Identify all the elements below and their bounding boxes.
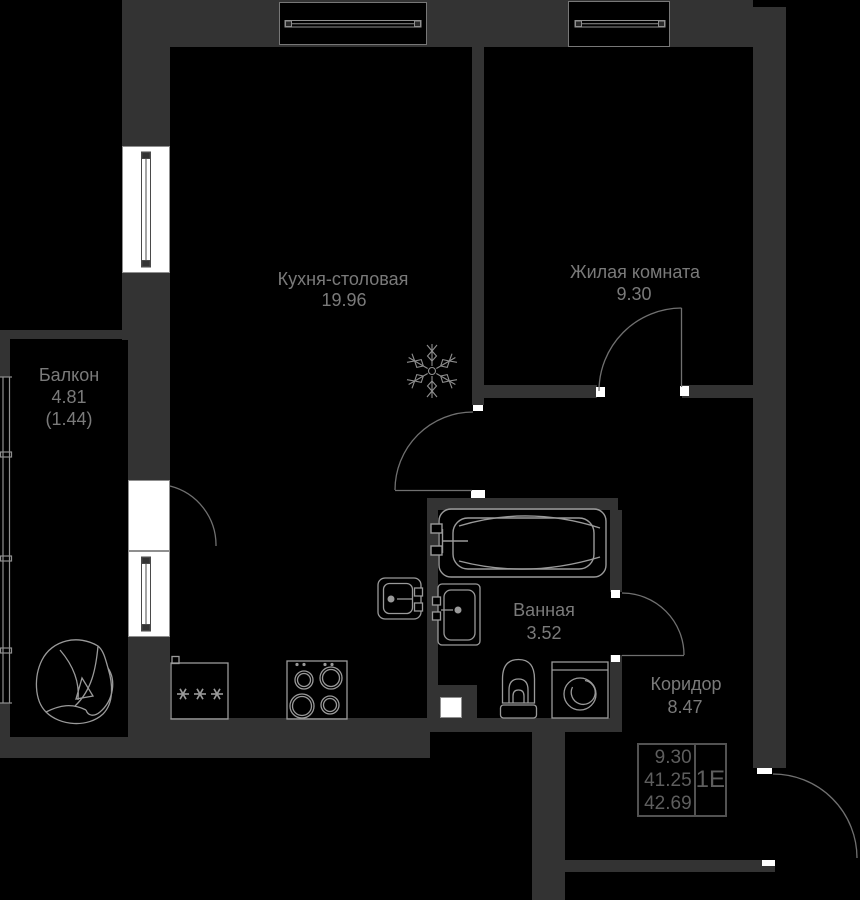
snowflake-icon [406, 344, 458, 398]
room-area-corridor: 8.47 [667, 697, 702, 717]
room-label-bathroom: Ванная [513, 600, 575, 620]
stove-icon [287, 661, 347, 719]
floor-plan: Кухня-столовая 19.96 Жилая комната 9.30 … [0, 0, 860, 900]
kitchen-sink-icon [378, 578, 423, 619]
washing-machine-icon [552, 662, 608, 718]
room-label-living: Жилая комната [570, 262, 700, 282]
fridge-frost-asterisks-icon [177, 689, 223, 699]
fridge-icon [171, 657, 228, 720]
bathroom-door [622, 593, 684, 656]
area-info-values: 9.30 41.25 42.69 [639, 745, 696, 815]
room-label-kitchen: Кухня-столовая [278, 269, 409, 289]
window-glass-balcony [142, 557, 151, 631]
living-room-door [599, 308, 682, 391]
balcony-glazing [0, 377, 12, 703]
bathtub-icon [431, 509, 606, 577]
window-glass-left-kitchen [142, 152, 151, 267]
total-area-value: 42.69 [639, 792, 692, 815]
balcony-door-arc [170, 486, 216, 546]
area-info-table: 9.30 41.25 42.69 1Е [637, 743, 727, 817]
door-arcs [170, 308, 857, 858]
toilet-icon [501, 660, 537, 719]
bathroom-sink-icon [433, 584, 481, 645]
armchair-icon [36, 640, 112, 724]
living-area-value: 9.30 [639, 746, 692, 769]
entrance-door-arc [773, 774, 857, 858]
room-area-balcony-reduced: (1.44) [45, 409, 92, 429]
room-area-bathroom: 3.52 [526, 623, 561, 643]
room-area-living: 9.30 [616, 284, 651, 304]
window-glass-top-living [575, 21, 665, 28]
room-area-balcony: 4.81 [51, 387, 86, 407]
area-without-balcony-value: 41.25 [639, 769, 692, 792]
fixtures-layer [0, 0, 860, 900]
kitchen-door [395, 412, 473, 491]
room-label-corridor: Коридор [650, 674, 721, 694]
room-area-kitchen: 19.96 [321, 290, 366, 310]
room-label-balcony: Балкон [39, 365, 99, 385]
window-glass-top-kitchen [285, 21, 421, 28]
unit-type-badge: 1Е [696, 745, 725, 815]
